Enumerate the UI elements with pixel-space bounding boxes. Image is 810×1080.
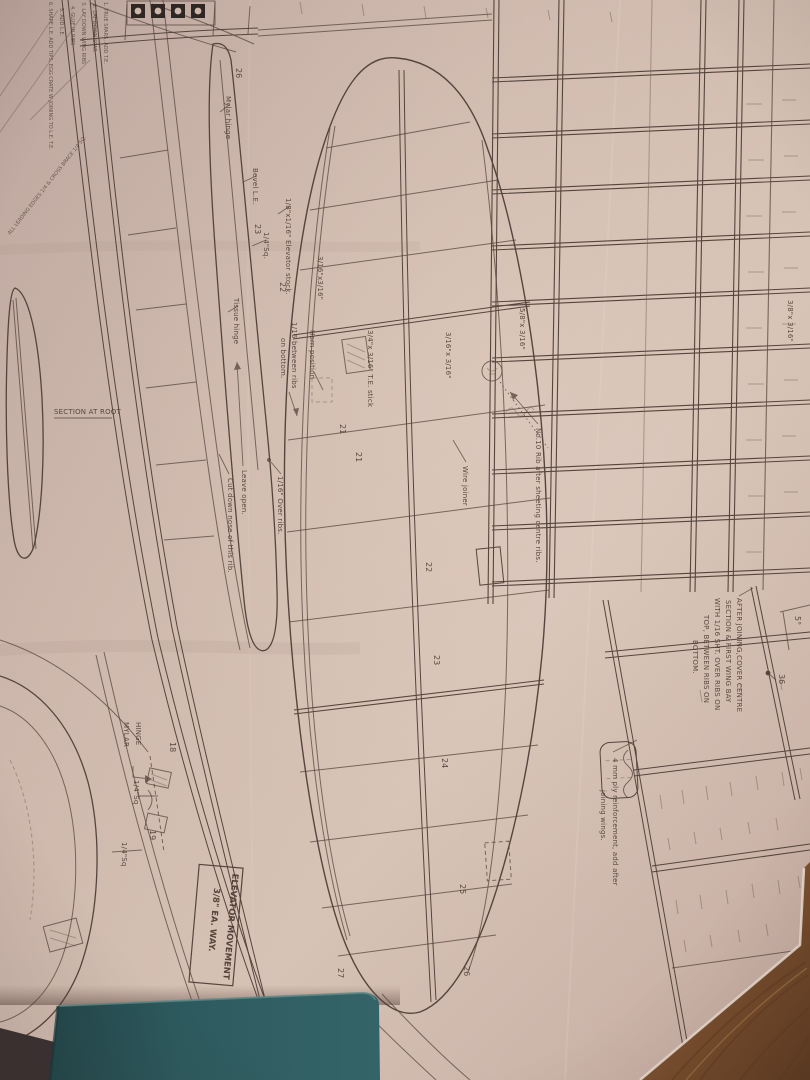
plan-photo-svg: 1. TRUE SPARS, ADD T.E. 2. LAY DOWN SPAR… <box>0 0 810 1080</box>
photo-vignette <box>0 0 810 1080</box>
foreground <box>0 0 810 1080</box>
photo-of-plan: 1. TRUE SPARS, ADD T.E. 2. LAY DOWN SPAR… <box>0 0 810 1080</box>
